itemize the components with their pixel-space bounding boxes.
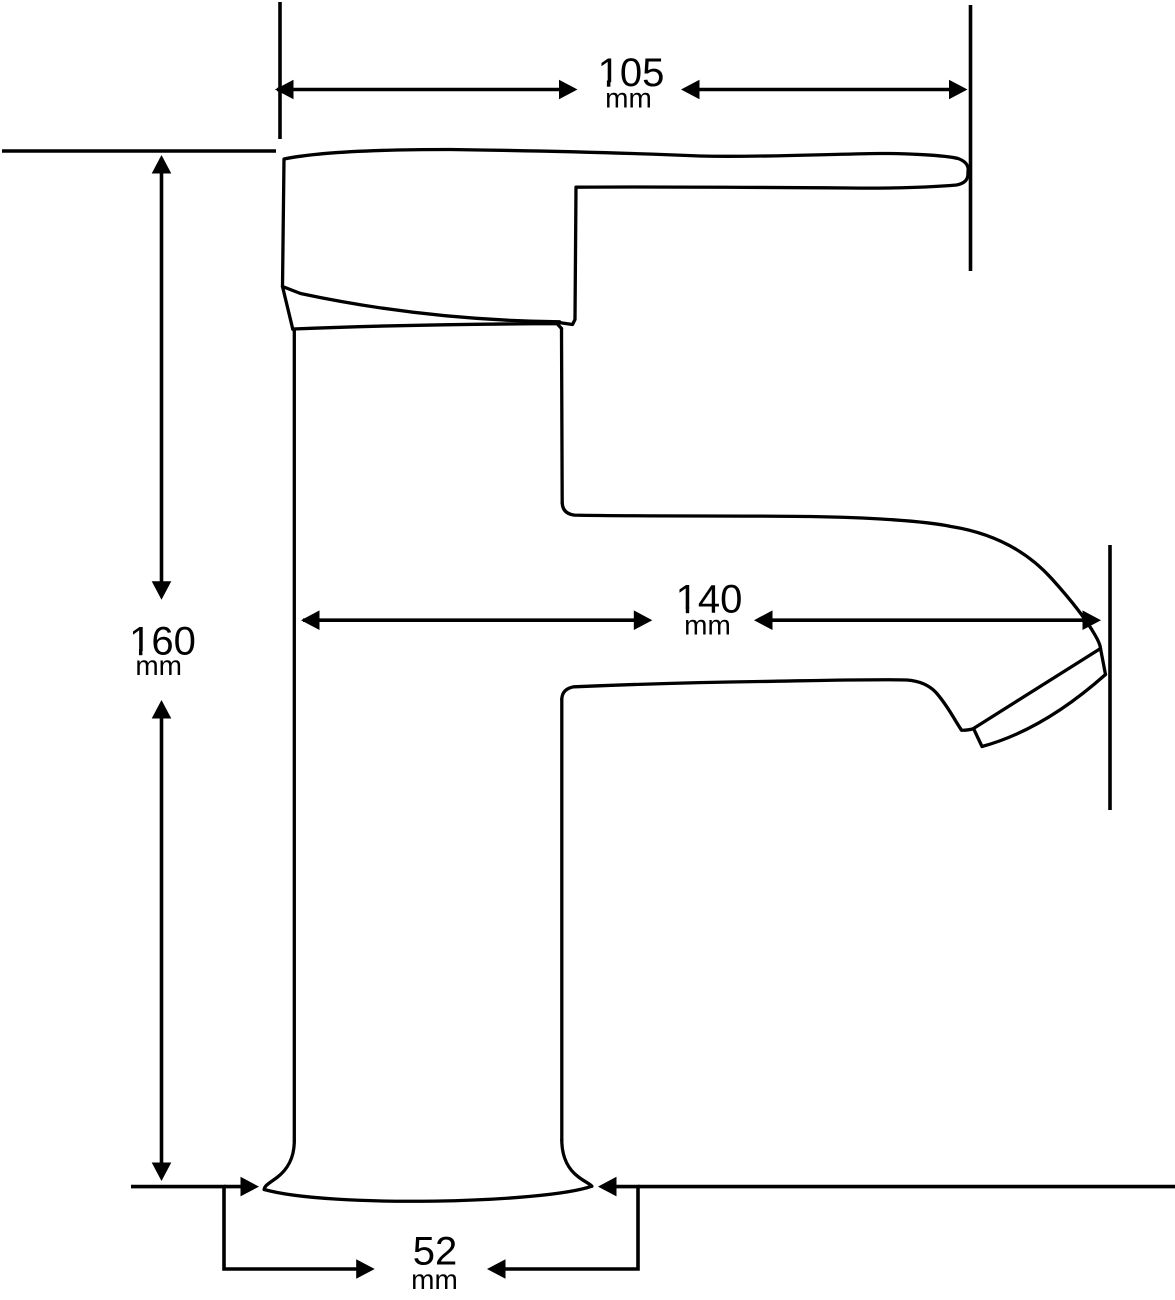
svg-text:mm: mm	[684, 610, 731, 641]
svg-text:mm: mm	[411, 1264, 458, 1295]
svg-text:mm: mm	[605, 83, 652, 114]
